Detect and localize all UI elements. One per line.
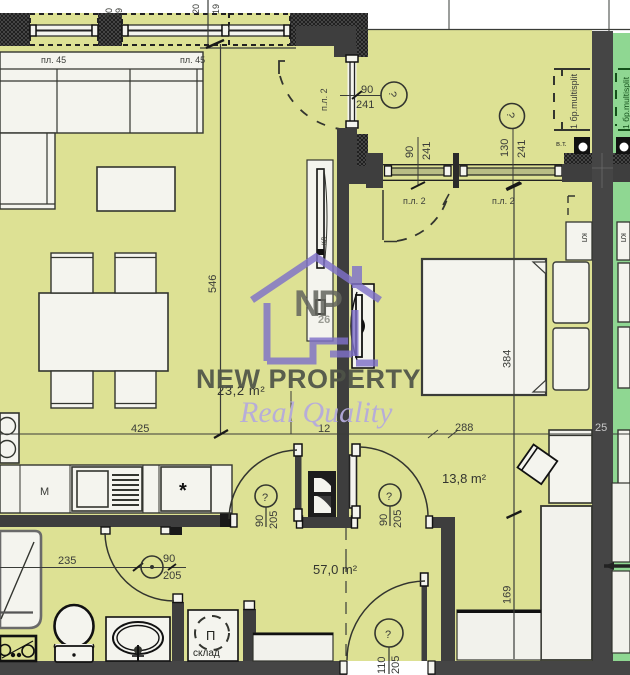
svg-text:NEW PROPERTY: NEW PROPERTY [196,364,421,394]
svg-text:?: ? [386,491,392,503]
svg-text:пл. 45: пл. 45 [180,55,205,65]
svg-text:205: 205 [268,511,280,529]
svg-text:90: 90 [378,514,390,526]
svg-text:КЛ: КЛ [321,237,328,245]
svg-text:546: 546 [207,275,219,293]
svg-text:169: 169 [502,586,514,604]
svg-text:205: 205 [390,656,402,674]
svg-text:57,0 m²: 57,0 m² [313,562,358,577]
svg-text:Real Quality: Real Quality [239,396,393,429]
svg-text:90: 90 [361,84,373,96]
svg-text:90: 90 [404,146,416,158]
svg-text:20: 20 [191,4,201,14]
svg-text:1 бр.multisplit: 1 бр.multisplit [569,73,579,129]
svg-text:п.л. 2: п.л. 2 [403,196,426,206]
svg-text:205: 205 [163,570,181,582]
svg-text:?: ? [385,629,391,641]
svg-text:90: 90 [163,553,175,565]
svg-text:?: ? [262,492,268,504]
svg-text:241: 241 [356,99,374,111]
svg-text:80: 80 [104,8,114,18]
svg-text:M: M [40,486,49,498]
svg-text:90: 90 [254,515,266,527]
svg-text:?: ? [504,112,516,118]
svg-text:П: П [206,628,215,643]
svg-text:кл: кл [619,233,629,242]
svg-text:241: 241 [421,142,433,160]
svg-text:19: 19 [114,8,124,18]
svg-text:склад: склад [193,648,220,659]
svg-text:кл: кл [580,233,590,242]
svg-text:в.т.: в.т. [556,139,567,148]
svg-text:1 бр.multisplit: 1 бр.multisplit [621,76,630,129]
svg-text:?: ? [386,91,398,97]
svg-text:25: 25 [595,422,607,434]
svg-text:110: 110 [376,656,388,674]
svg-text:пл. 45: пл. 45 [41,55,66,65]
svg-text:*: * [179,480,187,502]
svg-text:241: 241 [516,140,528,158]
svg-text:26: 26 [318,314,330,326]
svg-text:п.л. 2: п.л. 2 [492,196,515,206]
svg-text:288: 288 [455,422,473,434]
svg-text:130: 130 [499,139,511,157]
svg-text:п.л. 2: п.л. 2 [319,88,329,111]
svg-text:13,8 m²: 13,8 m² [442,471,487,486]
svg-text:425: 425 [131,423,149,435]
svg-text:19: 19 [211,4,221,14]
svg-text:205: 205 [392,510,404,528]
svg-text:384: 384 [502,350,514,368]
svg-text:235: 235 [58,555,76,567]
